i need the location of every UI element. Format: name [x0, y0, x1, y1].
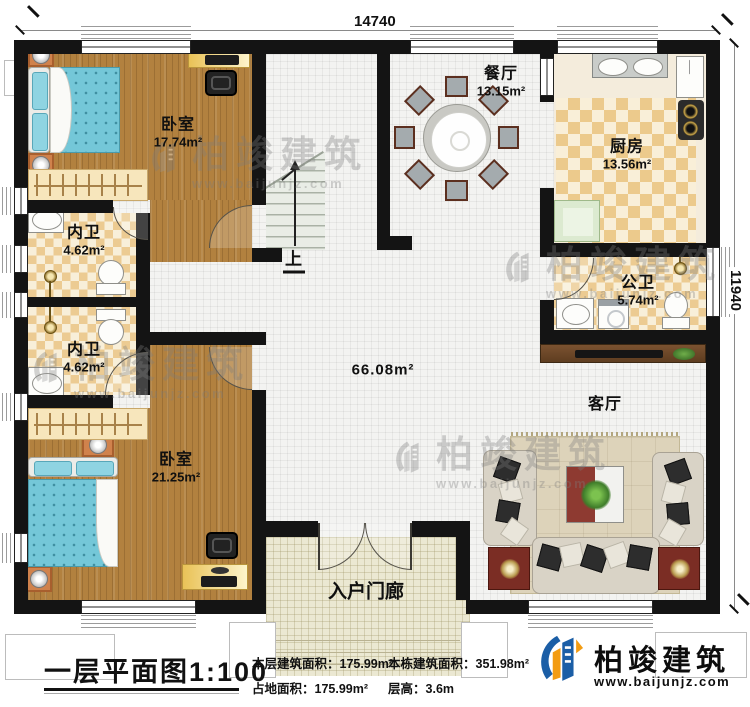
dining-chair	[445, 76, 468, 97]
bath2-counter	[28, 367, 64, 397]
stat-value: 175.99m²	[315, 682, 369, 696]
window-sill	[2, 245, 13, 273]
tv-icon	[575, 350, 663, 358]
floor-plan-page: 卧室 17.74m² 内卫 4.62m² 内卫 4.62m² 卧室 21.25m…	[0, 0, 750, 707]
toilet-tank	[96, 283, 126, 295]
room-label-bath2: 内卫 4.62m²	[63, 336, 104, 375]
room-label-living: 客厅	[588, 390, 622, 414]
corner-mark	[27, 5, 39, 17]
table-center	[450, 131, 470, 151]
lamp-icon	[30, 570, 48, 588]
plant-icon	[581, 480, 611, 510]
stat-value: 175.99m²	[340, 657, 394, 671]
room-name: 入户门廊	[328, 577, 404, 604]
wall-porch-right-connector	[456, 537, 470, 600]
wardrobe-rod	[34, 185, 143, 187]
room-name: 厨房	[603, 133, 651, 157]
stair-arrow-head	[290, 160, 300, 170]
laptop-icon	[201, 576, 237, 587]
wall-porch-left-stub	[266, 521, 318, 537]
room-label-dining: 餐厅 13.15m²	[477, 60, 525, 99]
dimension-line-top	[20, 30, 716, 31]
wall-bedroom2-right	[252, 390, 266, 614]
table-medallion	[500, 559, 520, 579]
burner-icon	[683, 104, 698, 119]
room-label-bath3: 公卫 5.74m²	[617, 269, 658, 308]
side-table	[488, 547, 530, 590]
kitchen-sink	[592, 52, 668, 78]
window	[410, 40, 514, 54]
room-area: 13.56m²	[603, 157, 651, 172]
room-area: 17.74m²	[154, 135, 202, 150]
window	[81, 40, 191, 54]
dining-table	[423, 104, 491, 172]
pillow	[32, 72, 48, 110]
room-label-bedroom1: 卧室 17.74m²	[154, 111, 202, 150]
window-sill	[528, 615, 653, 628]
sink-basin	[598, 58, 628, 76]
toilet-bowl-icon	[664, 292, 688, 319]
room-name: 客厅	[588, 390, 622, 414]
stat-label: 层高：	[388, 682, 426, 696]
room-label-kitchen: 厨房 13.56m²	[603, 133, 651, 172]
wall-bedroom1-right	[252, 54, 266, 205]
bed2-sheet	[96, 479, 118, 567]
room-name: 卧室	[154, 111, 202, 135]
toilet-tank	[662, 317, 690, 329]
stair-up-label: 上	[283, 245, 305, 274]
kitchen-pass-window	[540, 58, 554, 96]
room-name: 内卫	[63, 219, 104, 243]
window-sill	[2, 187, 13, 215]
coffee-table	[566, 466, 624, 523]
window-sill	[410, 26, 514, 39]
dimension-line-right	[734, 44, 735, 610]
stat-building-area: 本栋建筑面积：351.98m²	[388, 653, 529, 672]
burner-icon	[683, 121, 698, 136]
dining-chair	[445, 180, 468, 201]
nightstand	[26, 566, 52, 592]
window	[81, 600, 196, 614]
wall-dining-left	[377, 54, 390, 250]
room-name: 卧室	[152, 446, 200, 470]
window	[706, 247, 720, 317]
staircase	[266, 148, 325, 250]
desk-chair	[205, 70, 237, 96]
dining-chair	[498, 126, 519, 149]
stove	[678, 100, 704, 140]
kitchen-cabinet	[554, 200, 600, 242]
room-name: 公卫	[617, 269, 658, 293]
stat-floor-height: 层高：3.6m	[388, 678, 454, 697]
plan-title: 一层平面图1:100	[44, 650, 268, 689]
wall-kitchen-left-bottom	[540, 188, 554, 243]
window-sill	[2, 292, 13, 318]
desk-item	[211, 567, 229, 574]
fridge-door-line	[689, 52, 704, 75]
room-area: 4.62m²	[63, 360, 104, 375]
plan-title-text: 一层平面图	[44, 657, 189, 687]
wardrobe	[28, 169, 148, 201]
corner-mark	[721, 13, 733, 25]
sofa-pillow	[626, 544, 653, 571]
window-sill	[2, 533, 13, 563]
desk-chair	[206, 532, 238, 559]
window	[14, 533, 28, 563]
porch-label: 入户门廊	[328, 577, 404, 604]
bath3-counter	[556, 298, 594, 329]
dimension-right-value: 11940	[727, 267, 744, 314]
corner-mark	[737, 593, 749, 605]
title-underline-thin	[44, 693, 239, 694]
up-text: 上	[283, 245, 305, 274]
bed2-headboard	[28, 457, 118, 477]
wall-bath3-bottom	[540, 330, 706, 344]
wall-bedroom2-top	[150, 332, 266, 345]
room-area: 5.74m²	[617, 293, 658, 308]
stat-footprint-area: 占地面积：175.99m²	[252, 678, 368, 697]
wall-right	[706, 40, 720, 614]
window-sill	[2, 393, 13, 421]
washer-door	[607, 310, 625, 328]
sink-basin	[633, 58, 663, 76]
brand-name: 柏竣建筑	[594, 637, 730, 679]
side-table	[658, 547, 700, 590]
cabinet-top	[563, 208, 593, 236]
stat-label: 本栋建筑面积：	[388, 657, 476, 671]
wall-bath-divider	[14, 297, 150, 307]
fridge	[676, 56, 704, 98]
window	[14, 187, 28, 215]
rug-fringe	[511, 432, 679, 436]
brand-url: www.baijunjz.com	[594, 674, 730, 689]
floor-drain-icon	[44, 321, 57, 334]
laptop-icon	[205, 55, 239, 65]
plant-icon	[673, 348, 695, 360]
room-area: 21.25m²	[152, 470, 200, 485]
room-name: 内卫	[63, 336, 104, 360]
tv-cabinet	[540, 344, 706, 363]
door-leaf	[318, 523, 320, 570]
wall-left	[14, 40, 28, 614]
window	[528, 600, 653, 614]
table-medallion	[670, 559, 690, 579]
stat-floor-area: 本层建筑面积：175.99m²	[252, 653, 393, 672]
room-area: 13.15m²	[477, 84, 525, 99]
sink-icon	[32, 373, 62, 394]
sink-icon	[32, 210, 62, 230]
pillow	[32, 113, 48, 151]
bed1-headboard	[28, 67, 50, 153]
window	[14, 292, 28, 318]
window-sill	[81, 26, 191, 39]
stat-label: 本层建筑面积：	[252, 657, 340, 671]
dining-chair	[394, 126, 415, 149]
floor-drain-icon	[674, 262, 687, 275]
wall-dining-stub	[377, 236, 412, 250]
door-leaf	[410, 523, 412, 570]
window-sill	[557, 26, 658, 39]
room-label-bath1: 内卫 4.62m²	[63, 219, 104, 258]
wall-bath2-bottom	[14, 395, 113, 408]
pillow	[76, 461, 114, 476]
sink-icon	[562, 304, 590, 325]
wall-porch-right-stub	[412, 521, 470, 537]
room-area: 66.08m²	[352, 362, 415, 379]
window	[14, 245, 28, 273]
stair-arrow-line	[294, 170, 296, 246]
brand-logo-icon	[538, 628, 590, 694]
sofa-left	[483, 450, 537, 546]
wall-kitchen-bottom	[540, 243, 706, 257]
window	[557, 40, 658, 54]
room-name: 餐厅	[477, 60, 525, 84]
stat-value: 351.98m²	[476, 657, 530, 671]
room-label-bedroom2: 卧室 21.25m²	[152, 446, 200, 485]
wall-stair-stub	[252, 248, 282, 262]
pillow	[34, 461, 72, 476]
porch-step-line	[276, 640, 460, 641]
window	[14, 393, 28, 421]
title-underline	[44, 688, 239, 691]
sofa-main	[532, 537, 660, 594]
wardrobe-rod	[34, 424, 143, 426]
window-sill	[81, 615, 196, 628]
brand-logo	[538, 628, 590, 699]
dimension-top-value: 14740	[351, 13, 399, 30]
desk	[182, 564, 248, 590]
wall-bath1-top	[14, 200, 113, 213]
stat-label: 占地面积：	[252, 682, 315, 696]
sofa-right	[652, 452, 704, 546]
wardrobe	[28, 408, 148, 440]
room-area: 4.62m²	[63, 243, 104, 258]
stat-value: 3.6m	[426, 682, 455, 696]
hall-area-label: 66.08m²	[352, 362, 415, 379]
